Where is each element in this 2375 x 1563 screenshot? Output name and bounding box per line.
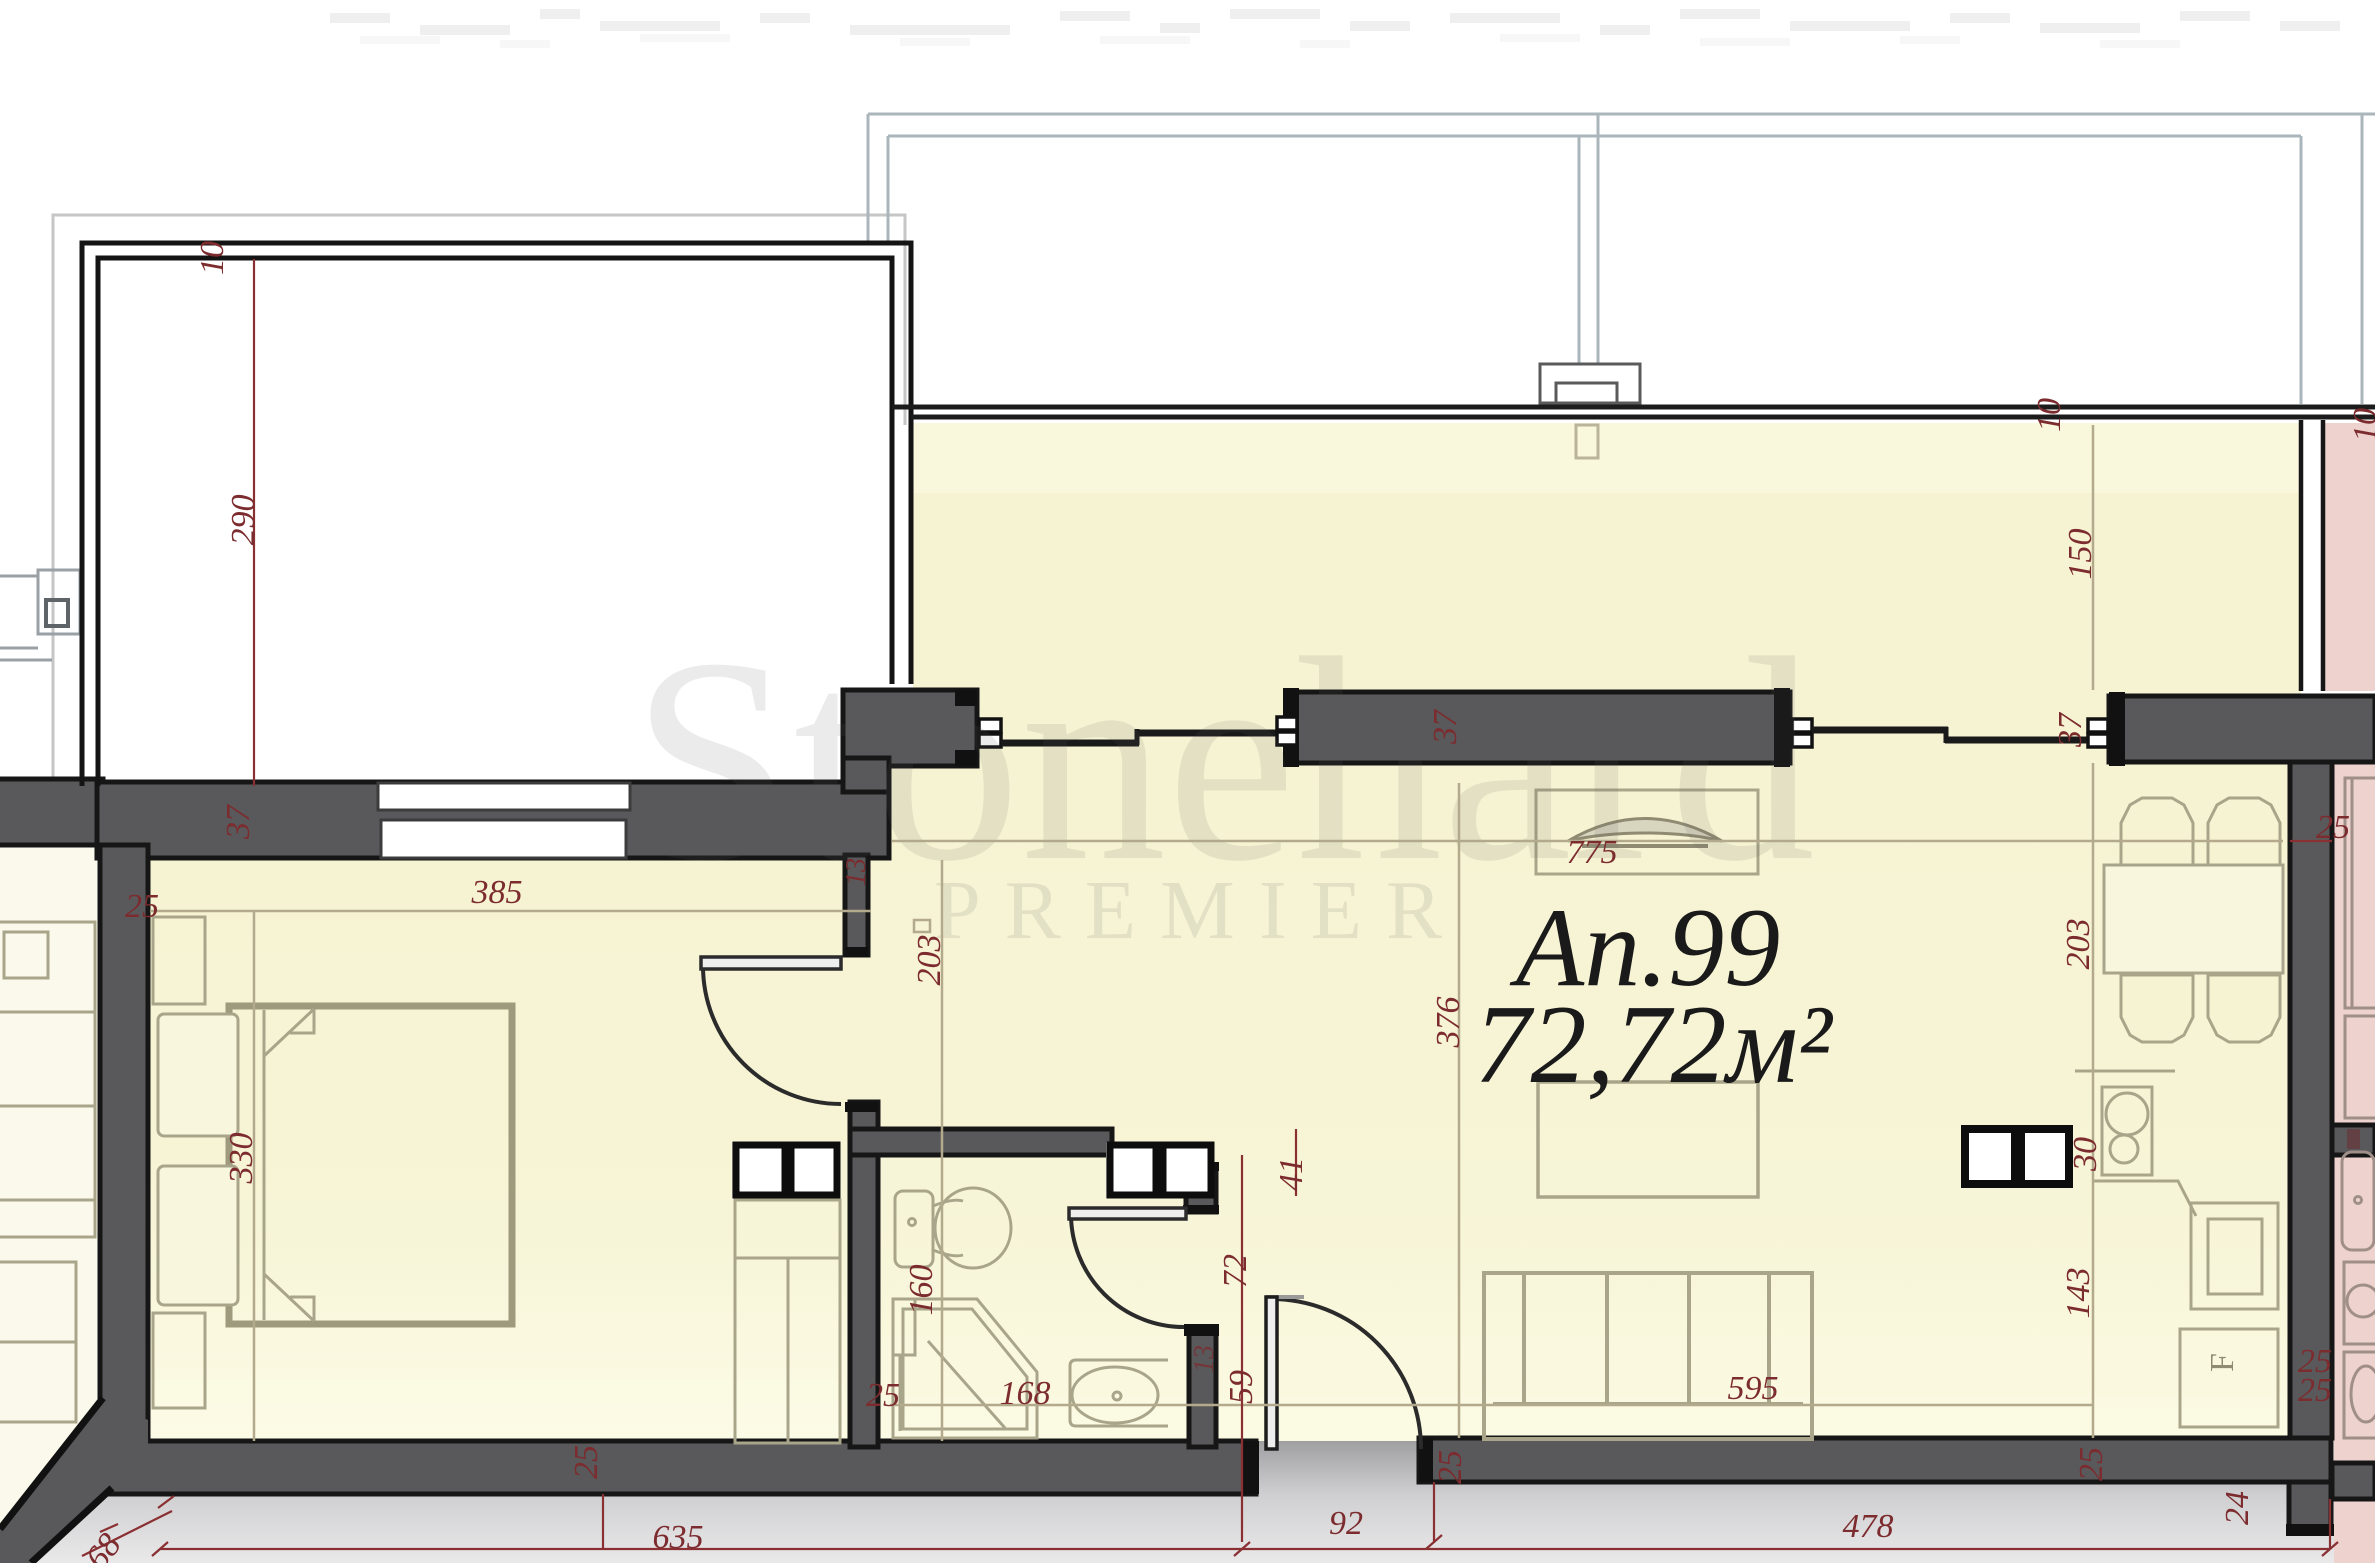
svg-text:595: 595 [1728,1370,1779,1407]
svg-text:24: 24 [2219,1491,2256,1525]
svg-text:775: 775 [1567,834,1618,871]
svg-text:150: 150 [2062,529,2099,580]
svg-text:25: 25 [2073,1447,2110,1481]
svg-text:37: 37 [1427,708,1464,745]
svg-text:72: 72 [1217,1254,1254,1288]
svg-text:25: 25 [125,888,159,925]
svg-text:203: 203 [911,935,948,986]
svg-text:25: 25 [2298,1372,2332,1409]
svg-text:72,72м²: 72,72м² [1474,983,1833,1107]
svg-text:478: 478 [1843,1508,1894,1545]
svg-text:290: 290 [225,495,262,546]
svg-text:203: 203 [2060,919,2097,970]
svg-text:330: 330 [223,1133,260,1185]
svg-text:25: 25 [2316,809,2350,846]
svg-text:30: 30 [2067,1137,2104,1172]
svg-text:143: 143 [2060,1268,2097,1319]
svg-text:92: 92 [1329,1505,1363,1542]
svg-text:635: 635 [653,1519,704,1556]
svg-text:59: 59 [1223,1370,1260,1404]
svg-text:F: F [2204,1353,2241,1372]
svg-text:376: 376 [1430,997,1467,1049]
svg-text:25: 25 [568,1445,605,1479]
svg-text:160: 160 [903,1265,940,1316]
svg-text:13: 13 [841,858,872,886]
svg-text:10: 10 [2347,408,2375,442]
svg-text:37: 37 [220,803,257,840]
svg-text:25: 25 [1432,1450,1469,1484]
svg-text:25: 25 [866,1377,900,1414]
svg-text:168: 168 [1000,1375,1051,1412]
svg-text:41: 41 [1273,1157,1310,1191]
svg-text:37: 37 [2052,711,2089,748]
svg-text:10: 10 [194,241,231,275]
svg-text:13: 13 [1189,1345,1220,1373]
svg-text:10: 10 [2031,398,2068,432]
svg-text:PREMIER: PREMIER [934,864,1466,957]
svg-text:385: 385 [471,874,523,911]
